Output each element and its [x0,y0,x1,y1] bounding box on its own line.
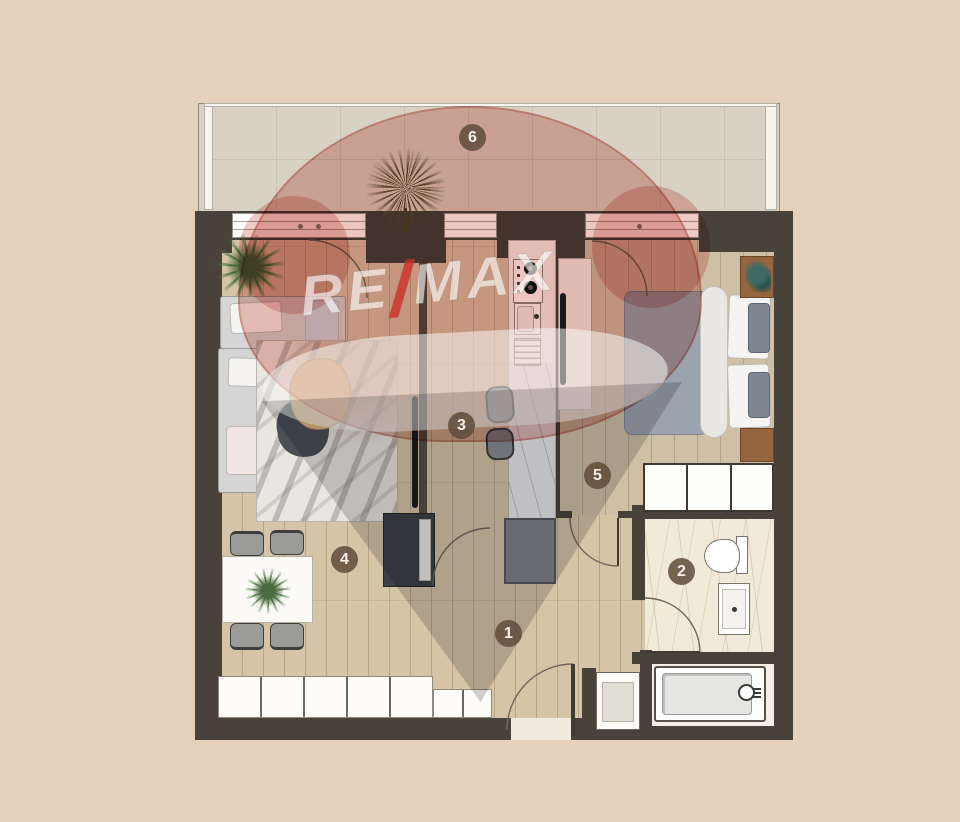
window-kitchen [444,213,497,238]
tv-cabinet-front [419,519,431,581]
burner-icon [524,262,537,275]
entrance-opening [509,718,573,740]
dining-chair [270,530,304,555]
bed-pillow-gray [748,372,770,418]
dining-chair [270,623,304,650]
room-number-kitchen: 3 [448,412,475,439]
balcony-tile-floor [213,107,765,209]
balcony-rail-right [765,106,777,210]
toilet-bowl [704,539,740,573]
wall-bathroom-west [632,519,645,600]
table-plant-icon [245,568,291,614]
room-number-label: 1 [504,625,513,643]
bathroom-marble-floor [645,519,774,652]
bed-duvet [624,291,708,435]
window-handle-icon [316,224,321,229]
wall-living-kitchen-partition [419,263,427,513]
sideboard-cabinets [218,676,433,718]
room-number-label: 6 [468,129,477,147]
wall-right [774,211,793,740]
bed-pillow-gray [748,303,770,353]
tv-living [412,396,418,508]
room-number-balcony: 6 [459,124,486,151]
sofa-pillow-blue [305,300,339,345]
tub-faucet-handle [753,687,761,698]
room-number-label: 5 [593,467,602,485]
sofa-pillow [229,301,283,335]
bar-stool [485,427,515,460]
wall-bedroom-south-stub-right [618,511,634,518]
hall-closet-inner [602,682,634,722]
faucet-icon [534,314,539,319]
drain-icon [732,607,737,612]
nightstand-plant-icon [745,260,771,292]
small-cabinets [433,689,492,718]
wall-bathroom-south [632,652,774,664]
bed-blanket-roll [700,286,728,438]
nightstand [740,428,774,462]
burner-icon [524,281,537,294]
window-bedroom [585,213,699,238]
dish-rack [514,338,541,366]
kitchen-island-marble [509,362,555,519]
window-handle-icon [637,224,642,229]
dining-chair [230,531,264,556]
balcony-rail-top [204,103,777,107]
stove-knobs [517,263,520,293]
potted-plant-icon [214,234,286,300]
room-number-label: 2 [677,563,686,581]
window-handle-icon [298,224,303,229]
room-number-bathroom: 2 [668,558,695,585]
wardrobe-divider [686,465,688,510]
bar-stool [485,385,516,424]
bedroom-wardrobe [643,463,774,512]
tv-bedroom [560,293,566,385]
sink-basin [517,306,534,332]
dining-chair [230,623,264,650]
balcony-rail-left [204,106,213,210]
room-number-label: 4 [340,551,349,569]
wardrobe-divider [730,465,732,510]
room-number-hallway: 1 [495,620,522,647]
room-number-living: 4 [331,546,358,573]
floor-plan: RE/MAX 1 2 3 4 5 6 [0,0,960,822]
wall-entry-stub [582,668,596,740]
fridge [504,518,556,584]
balcony-plant-stem [404,208,407,232]
room-number-bedroom: 5 [584,462,611,489]
room-number-label: 3 [457,417,466,435]
